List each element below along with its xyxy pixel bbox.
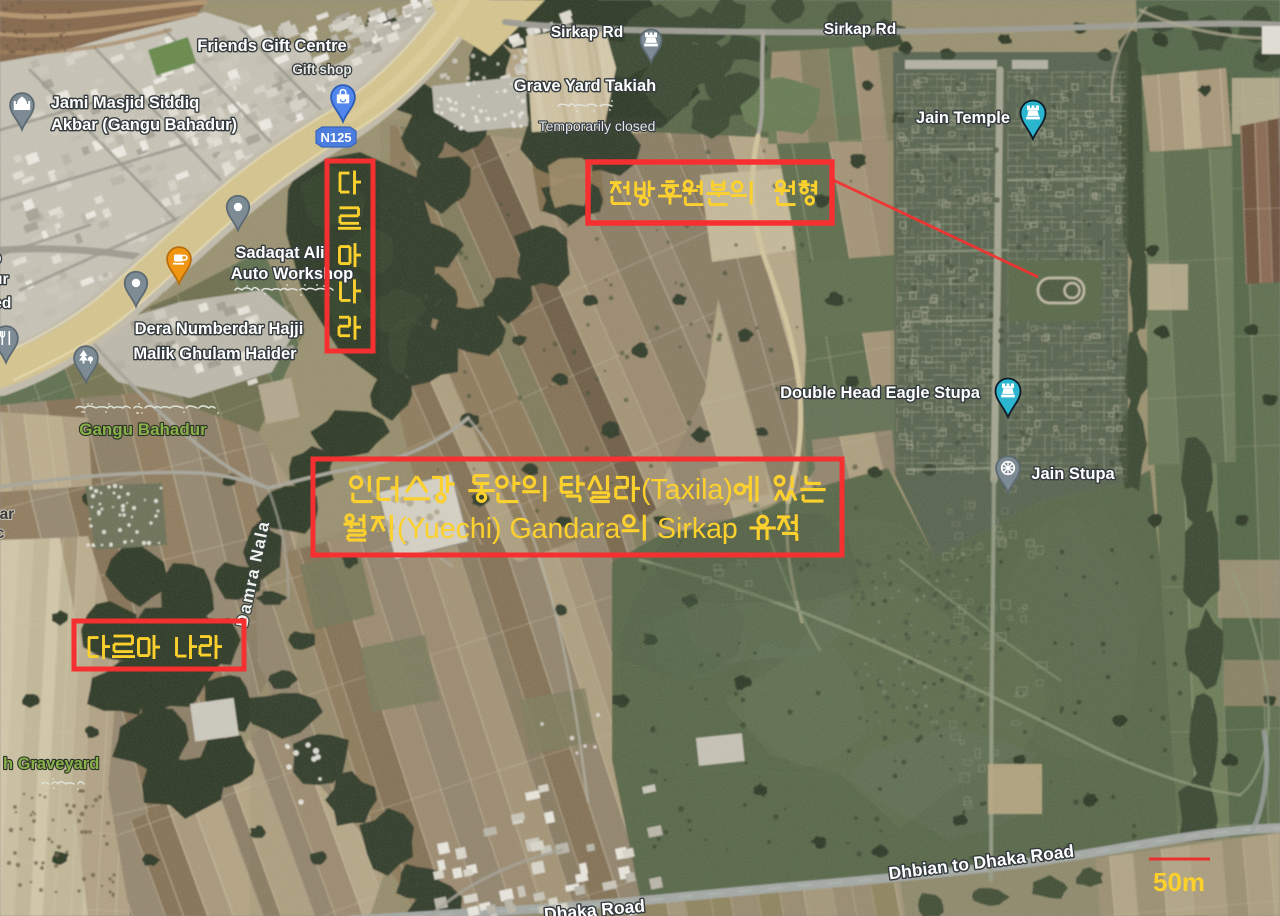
svg-text:Grave Yard Takiah: Grave Yard Takiah	[514, 77, 656, 95]
svg-text:Gangu Bahadur: Gangu Bahadur	[79, 420, 207, 439]
svg-text:N125: N125	[320, 130, 351, 145]
svg-text:Sirkap Rd: Sirkap Rd	[551, 24, 623, 41]
svg-text:Sadaqat Ali: Sadaqat Ali	[235, 244, 324, 262]
svg-text:Gift shop: Gift shop	[292, 62, 351, 77]
svg-text:Temporarily closed: Temporarily closed	[539, 118, 656, 134]
svg-text:dur: dur	[0, 271, 8, 288]
svg-text:Double Head Eagle Stupa: Double Head Eagle Stupa	[780, 384, 981, 402]
svg-text:op: op	[0, 250, 1, 267]
svg-text:sed: sed	[0, 295, 11, 312]
svg-text:mar: mar	[0, 506, 14, 523]
svg-text:Sirkap Rd: Sirkap Rd	[824, 21, 896, 38]
svg-text:(Taxila): (Taxila)	[641, 474, 733, 506]
svg-text:Auto Workshop: Auto Workshop	[231, 265, 354, 283]
svg-text:Jain Temple: Jain Temple	[916, 109, 1010, 127]
svg-text:h Graveyard: h Graveyard	[3, 755, 99, 773]
svg-text:c: c	[0, 525, 5, 542]
svg-text:Jami Masjid Siddiq: Jami Masjid Siddiq	[51, 94, 200, 112]
svg-text:(Yuechi) Gandara: (Yuechi) Gandara	[397, 513, 621, 545]
svg-text:Friends Gift Centre: Friends Gift Centre	[197, 37, 346, 55]
svg-text:Dera Numberdar Hajji: Dera Numberdar Hajji	[135, 320, 304, 338]
svg-text:Akbar (Gangu Bahadur): Akbar (Gangu Bahadur)	[51, 116, 237, 134]
svg-text:50m: 50m	[1153, 867, 1205, 897]
svg-text:Jain Stupa: Jain Stupa	[1031, 465, 1115, 483]
svg-text:Malik Ghulam Haider: Malik Ghulam Haider	[133, 345, 297, 363]
svg-text:Sirkap: Sirkap	[657, 513, 738, 545]
